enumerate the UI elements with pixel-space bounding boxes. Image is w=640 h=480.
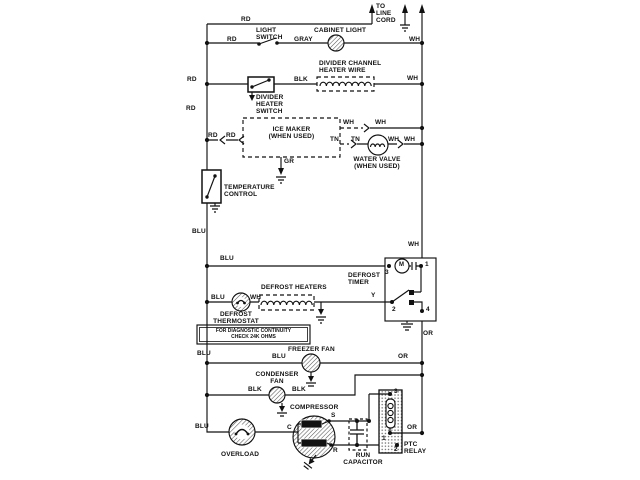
- defrost-timer-symbol: [385, 258, 436, 330]
- timer-terminal-1: 1: [425, 261, 429, 268]
- ptc-terminal-2: 2: [394, 446, 398, 453]
- defrost-timer-label: DEFROST TIMER: [348, 272, 380, 286]
- wire-label-wh-timer: WH: [408, 241, 419, 248]
- wire-label-rd-bus: RD: [186, 105, 196, 112]
- divider-heater-element: [317, 77, 374, 91]
- freezer-fan-label: FREEZER FAN: [288, 346, 335, 353]
- defrost-heater-element: [259, 295, 314, 310]
- to-line-cord-label: TO LINE CORD: [376, 3, 396, 24]
- timer-terminal-4: 4: [426, 306, 430, 313]
- divider-heater-switch-label: DIVIDER HEATER SWITCH: [256, 94, 283, 115]
- wire-label-blu-bus-mid: BLU: [192, 228, 206, 235]
- wire-label-or-ptc: OR: [407, 424, 417, 431]
- run-capacitor-label: RUN CAPACITOR: [337, 452, 389, 466]
- wire-label-rd-ice-1: RD: [208, 132, 218, 139]
- overload-label: OVERLOAD: [221, 451, 259, 458]
- temperature-control-label: TEMPERATURE CONTROL: [224, 184, 275, 198]
- cabinet-light-symbol: [328, 35, 344, 51]
- temperature-control-symbol: [202, 170, 221, 212]
- ptc-terminal-3: 3: [394, 388, 398, 395]
- wire-label-rd-top: RD: [241, 16, 251, 23]
- wire-label-blu-bottom: BLU: [195, 423, 209, 430]
- overload-symbol: [229, 419, 255, 445]
- line-cord-ground: [400, 4, 410, 31]
- compressor-symbol: [293, 416, 335, 471]
- wire-label-wh-light: WH: [409, 36, 420, 43]
- junction-dots: [205, 41, 424, 447]
- divider-channel-heater-label: DIVIDER CHANNEL HEATER WIRE: [319, 60, 381, 74]
- left-bus-wire: [207, 24, 229, 432]
- wire-label-wh-ice-1: WH: [343, 119, 354, 126]
- wire-label-blu-bus-low: BLU: [197, 350, 211, 357]
- wire-label-tn-1: TN: [330, 136, 339, 143]
- wire-label-wh-ice-2: WH: [375, 119, 386, 126]
- diagnostic-note-label: FOR DIAGNOSTIC CONTINUITY CHECK 24K OHMS: [199, 329, 308, 340]
- condenser-fan-symbol: [269, 387, 287, 416]
- light-switch-label: LIGHT SWITCH: [256, 27, 283, 41]
- line-cord-wires: [207, 4, 375, 24]
- defrost-heater-ground: [316, 302, 326, 323]
- wire-label-y-timer: Y: [371, 292, 376, 299]
- cabinet-light-label: CABINET LIGHT: [314, 27, 366, 34]
- wire-label-gr-ice: GR: [284, 158, 294, 165]
- wire-label-blk-cond-2: BLK: [292, 386, 306, 393]
- wire-label-blk-cond-1: BLK: [248, 386, 262, 393]
- compressor-terminal-c: C: [287, 424, 292, 431]
- ptc-terminal-1: 1: [382, 435, 386, 442]
- ice-maker-label: ICE MAKER (WHEN USED): [243, 126, 340, 140]
- wire-label-blu-thermostat: BLU: [211, 294, 225, 301]
- compressor-label: COMPRESSOR: [290, 404, 338, 411]
- wire-label-blu-timer: BLU: [220, 255, 234, 262]
- timer-motor-label: M: [399, 262, 404, 269]
- compressor-terminal-s: S: [331, 412, 336, 419]
- wiring-diagram: TO LINE CORD RD LIGHT SWITCH RD GRAY CAB…: [0, 0, 640, 480]
- defrost-heaters-label: DEFROST HEATERS: [261, 284, 327, 291]
- wire-label-tn-2: TN: [351, 136, 360, 143]
- right-bus-wire: [419, 4, 425, 433]
- wire-label-or-freezer: OR: [398, 353, 408, 360]
- ptc-relay-label: PTC RELAY: [404, 441, 426, 455]
- timer-terminal-2: 2: [392, 306, 396, 313]
- wire-label-rd-divider: RD: [187, 76, 197, 83]
- wire-label-or-timer: OR: [423, 330, 433, 337]
- wire-label-rd-light: RD: [227, 36, 237, 43]
- wire-label-rd-ice-2: RD: [226, 132, 236, 139]
- condenser-fan-label: CONDENSER FAN: [251, 371, 303, 385]
- defrost-thermostat-symbol: [232, 293, 250, 311]
- freezer-fan-symbol: [302, 354, 320, 386]
- defrost-thermostat-label: DEFROST THERMOSTAT: [208, 311, 264, 325]
- timer-terminal-3: 3: [385, 269, 389, 276]
- wire-label-wh-thermostat: WH: [250, 294, 261, 301]
- wire-label-wh-valve-2: WH: [404, 136, 415, 143]
- wire-label-blk-divider: BLK: [294, 76, 308, 83]
- water-valve-label: WATER VALVE (WHEN USED): [351, 156, 403, 170]
- wire-label-wh-divider: WH: [407, 75, 418, 82]
- water-valve-symbol: [368, 135, 388, 155]
- wire-label-wh-valve-1: WH: [388, 136, 399, 143]
- wire-label-blu-freezer: BLU: [272, 353, 286, 360]
- wire-label-gray: GRAY: [294, 36, 313, 43]
